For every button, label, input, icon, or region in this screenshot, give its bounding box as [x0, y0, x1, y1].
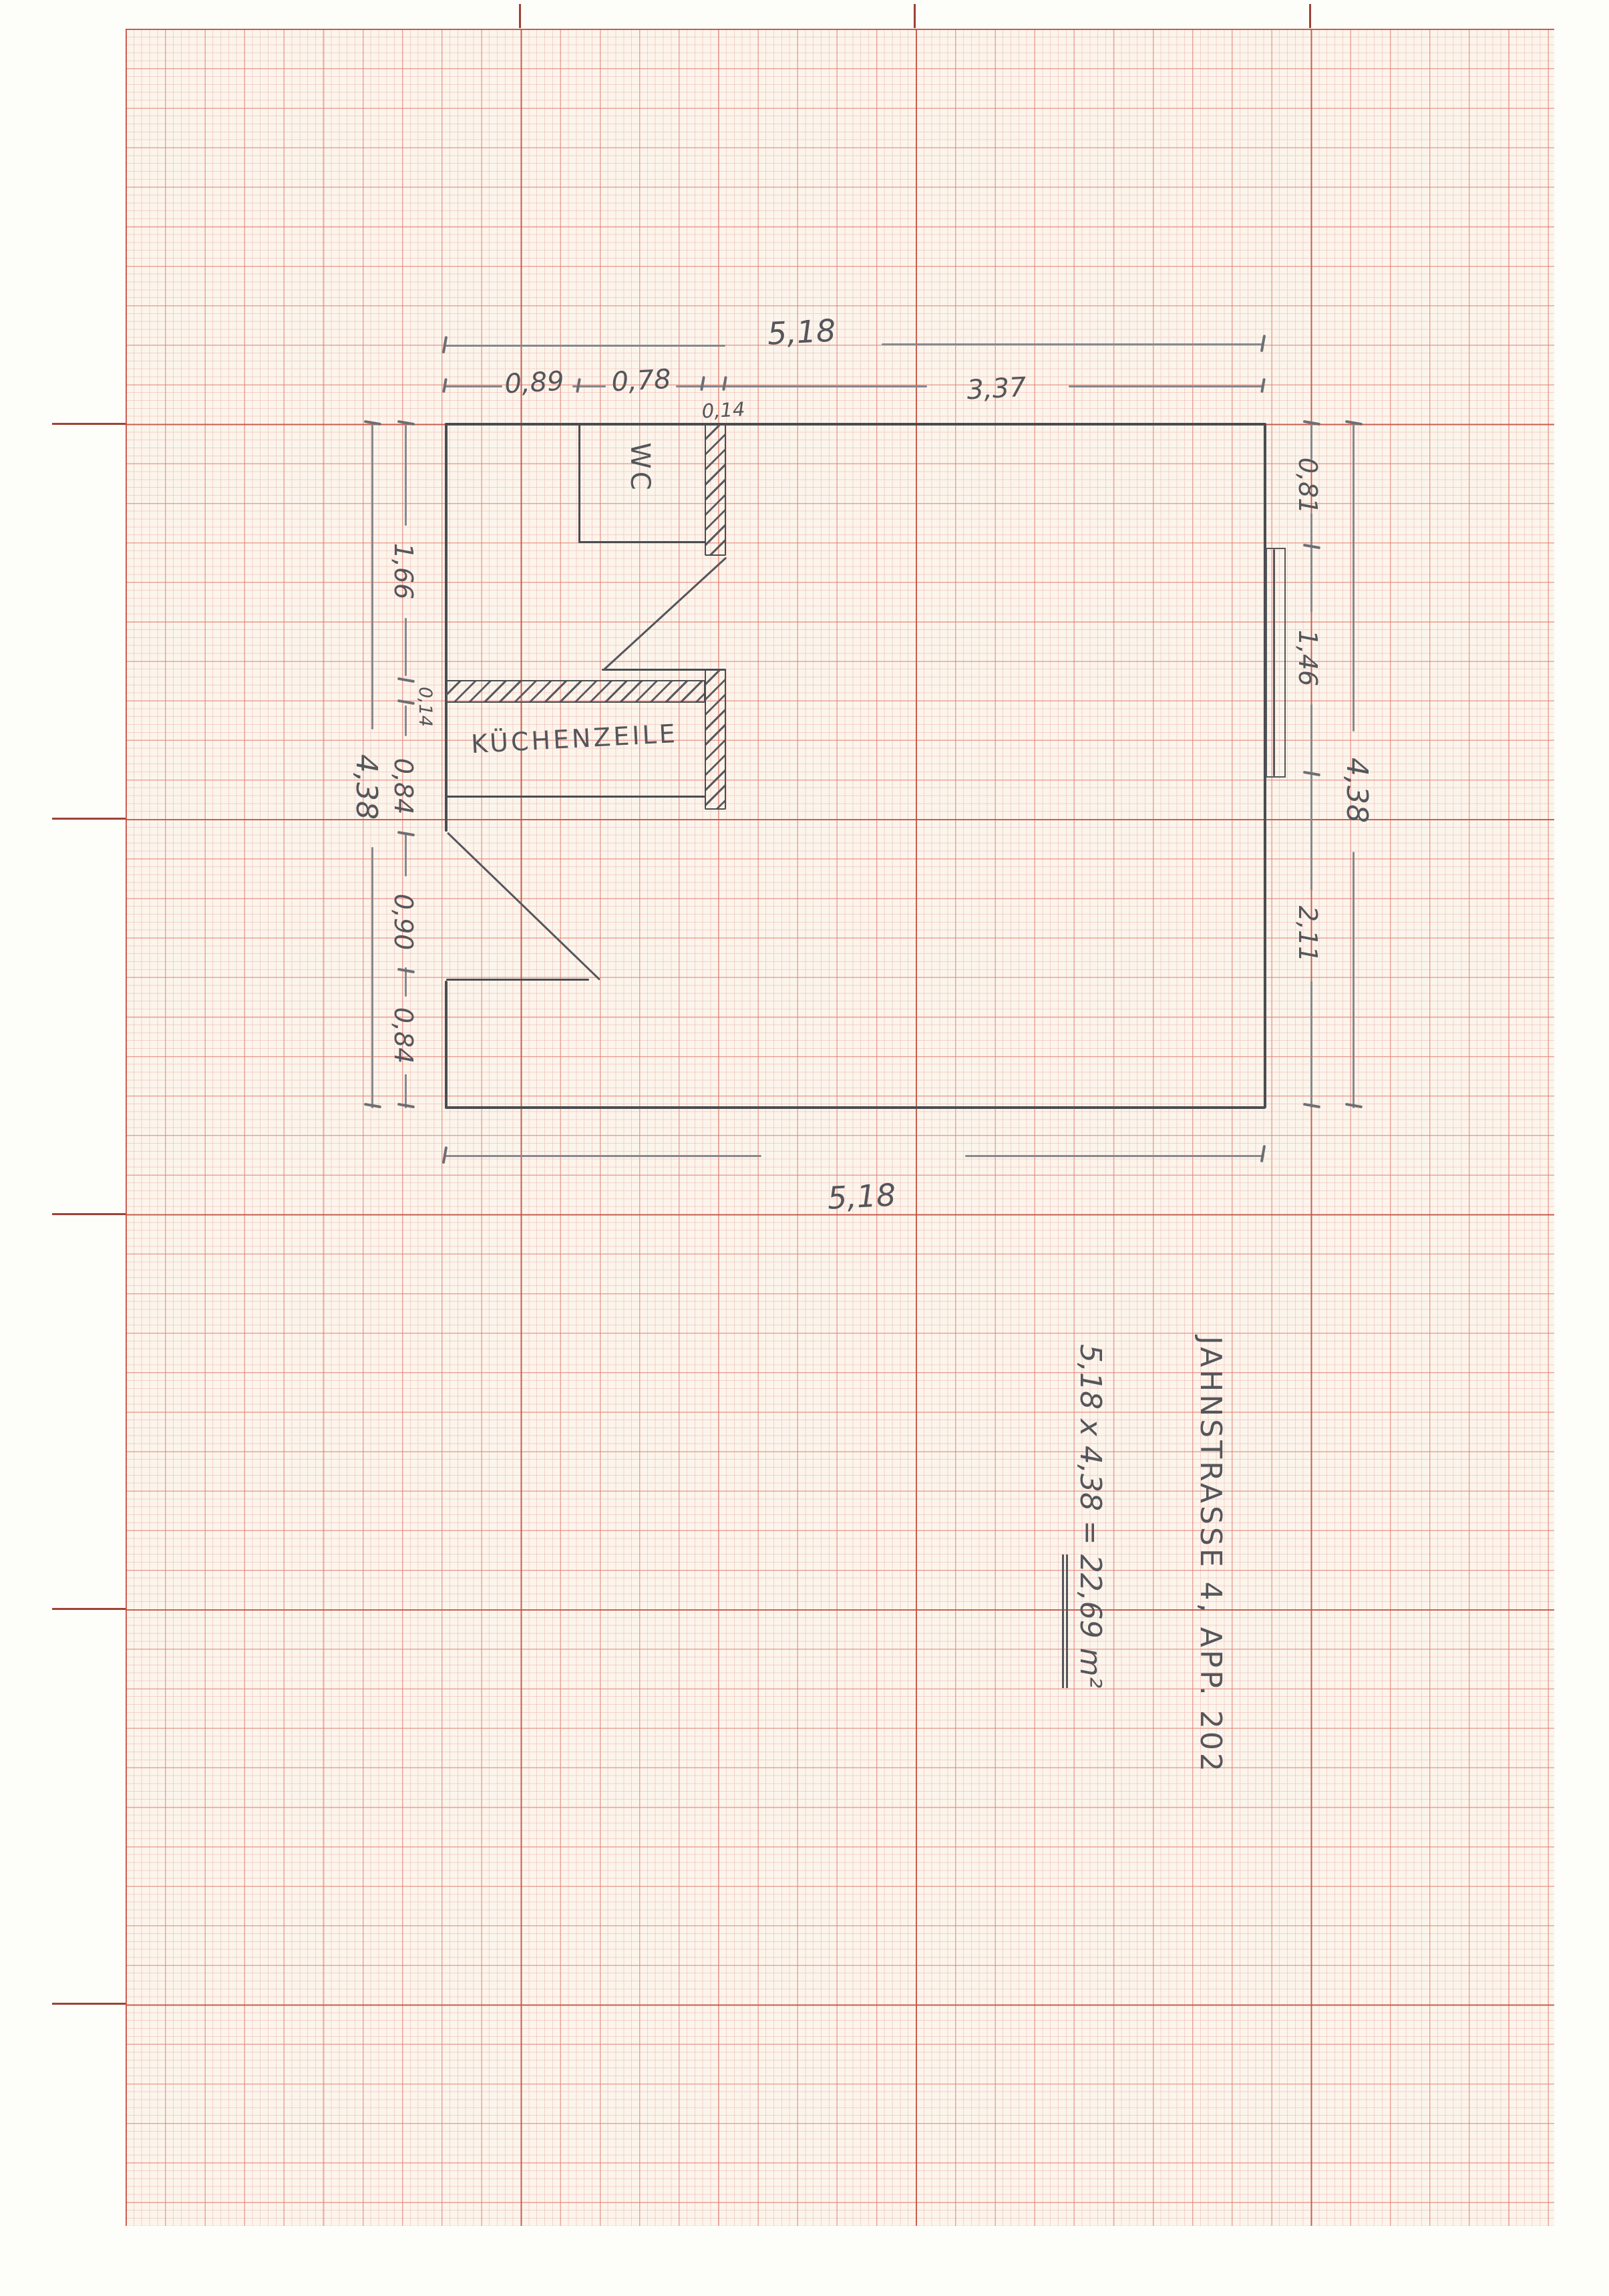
kitchen-wall-hatched-bar	[705, 669, 726, 810]
entry-door-opening-line	[446, 979, 589, 981]
wall-bottom	[445, 1106, 1266, 1109]
dim-left-total-line	[371, 423, 373, 729]
wc-wall-bottom	[578, 541, 706, 543]
dim-bottom-line	[445, 1155, 761, 1157]
grid-tick-left	[52, 423, 126, 425]
grid-tick-left	[52, 818, 126, 820]
annotation-result: 22,69 m²	[1062, 1554, 1107, 1688]
dim-left-total: 4,38	[349, 754, 383, 820]
window-symbol-midline	[1273, 549, 1275, 776]
grid-tick-left	[52, 1213, 126, 1215]
wc-wall-hatched	[705, 424, 726, 556]
dim-left-seg5: 0,84	[389, 1007, 418, 1064]
dim-bottom-line	[965, 1155, 1264, 1157]
annotation-address: JAHNSTRASSE 4, APP. 202	[1194, 1336, 1228, 1774]
dim-left-seg2: 0,14	[415, 687, 435, 727]
kitchen-counter-line	[445, 796, 706, 798]
wall-top	[445, 423, 1266, 426]
kitchen-wall-hatched	[445, 680, 705, 703]
annotation-area-calculation: 5,18 x 4,38 = 22,69 m²	[1073, 1344, 1107, 1688]
dim-top-seg2: 0,78	[610, 364, 671, 398]
dim-right-seg-line	[1310, 423, 1312, 460]
grid-tick-top	[1309, 4, 1311, 28]
dim-bottom-total: 5,18	[826, 1176, 896, 1216]
dim-right-total-line	[1353, 423, 1355, 731]
dim-left-seg-line	[405, 833, 407, 876]
dim-top-total: 5,18	[766, 312, 836, 351]
dim-left-total-line	[371, 847, 373, 1108]
dim-left-seg1: 1,66	[389, 543, 418, 600]
wall-left-lower	[445, 981, 448, 1108]
grid-tick-left	[52, 2003, 126, 2005]
dim-right-seg1: 0,81	[1293, 458, 1322, 514]
dim-left-seg-line	[405, 705, 407, 736]
window-symbol	[1266, 548, 1286, 778]
dim-right-seg3: 2,11	[1293, 906, 1322, 963]
dim-left-seg-line	[405, 423, 407, 526]
millimeter-grid	[126, 29, 1554, 2226]
grid-tick-top	[519, 4, 521, 28]
dim-left-seg3: 0,84	[389, 758, 418, 815]
dim-left-seg4: 0,90	[389, 894, 418, 951]
dim-right-total: 4,38	[1340, 758, 1374, 823]
wc-wall-left	[578, 424, 580, 543]
wc-room-label: WC	[624, 442, 655, 492]
dim-top-seg4: 3,37	[966, 372, 1027, 406]
dim-top-seg1: 0,89	[504, 366, 564, 400]
annotation-equation: 5,18 x 4,38 =	[1073, 1344, 1107, 1545]
wall-left-upper	[445, 423, 448, 832]
dim-left-seg-line	[405, 618, 407, 676]
dim-top-total-line	[882, 343, 1264, 345]
dim-top-seg-line	[676, 385, 927, 387]
grid-tick-left	[52, 1608, 126, 1610]
dim-left-seg-line	[405, 1074, 407, 1108]
dim-right-seg-line	[1310, 981, 1312, 1108]
dim-right-seg-line	[1310, 513, 1312, 613]
dim-right-seg-line	[1310, 704, 1312, 890]
grid-tick-top	[914, 4, 916, 28]
dim-right-seg2: 1,46	[1293, 630, 1322, 687]
dim-top-seg3: 0,14	[701, 397, 745, 422]
dim-top-seg-line	[445, 385, 502, 387]
dim-right-total-line	[1353, 852, 1355, 1108]
graph-paper-scan: WC KÜCHENZEILE 5,18 0,89 0,78 0,14 3,37 …	[0, 0, 1609, 2296]
dim-top-seg-line	[1069, 385, 1264, 387]
dim-top-total-line	[445, 345, 725, 347]
